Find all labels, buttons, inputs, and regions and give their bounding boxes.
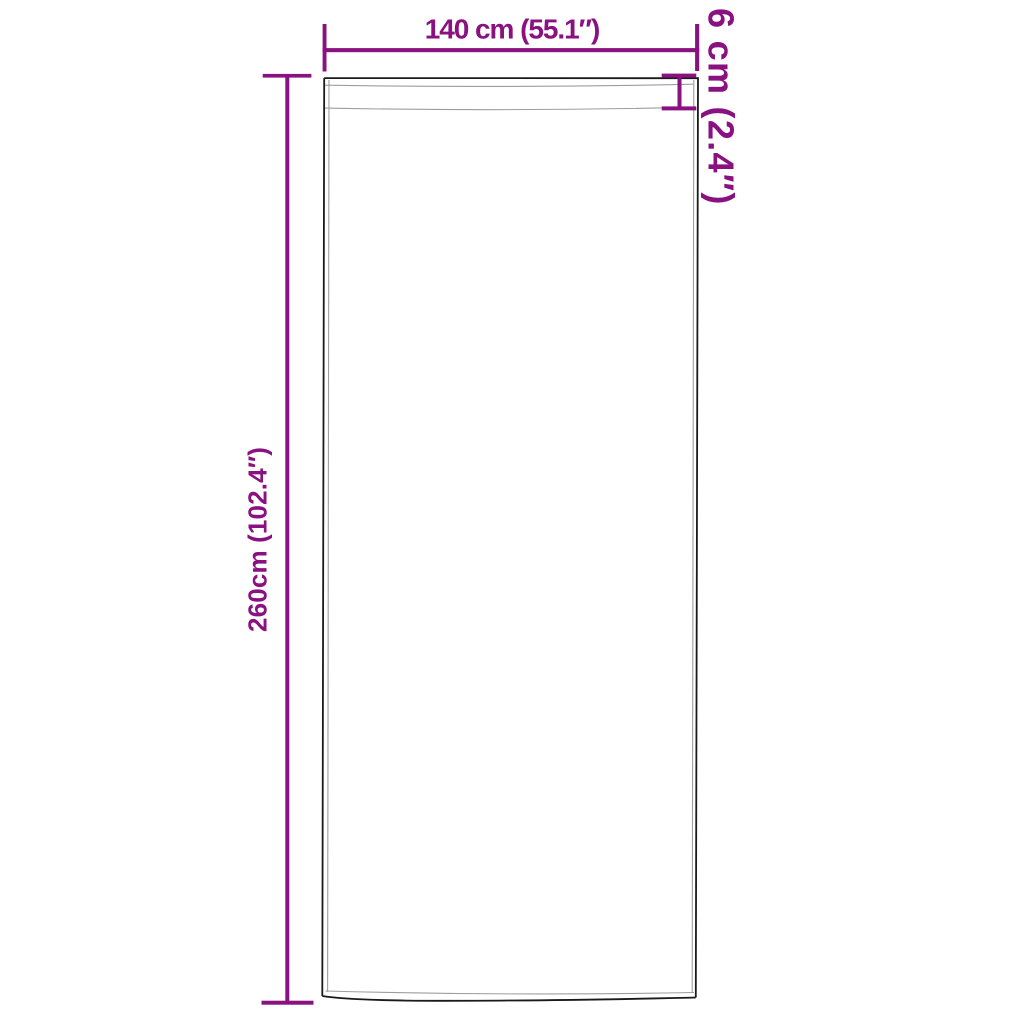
svg-text:6 cm (2.4″): 6 cm (2.4″) <box>701 8 742 206</box>
svg-text:140 cm (55.1″): 140 cm (55.1″) <box>425 14 600 45</box>
svg-text:260cm (102.4″): 260cm (102.4″) <box>243 447 273 632</box>
